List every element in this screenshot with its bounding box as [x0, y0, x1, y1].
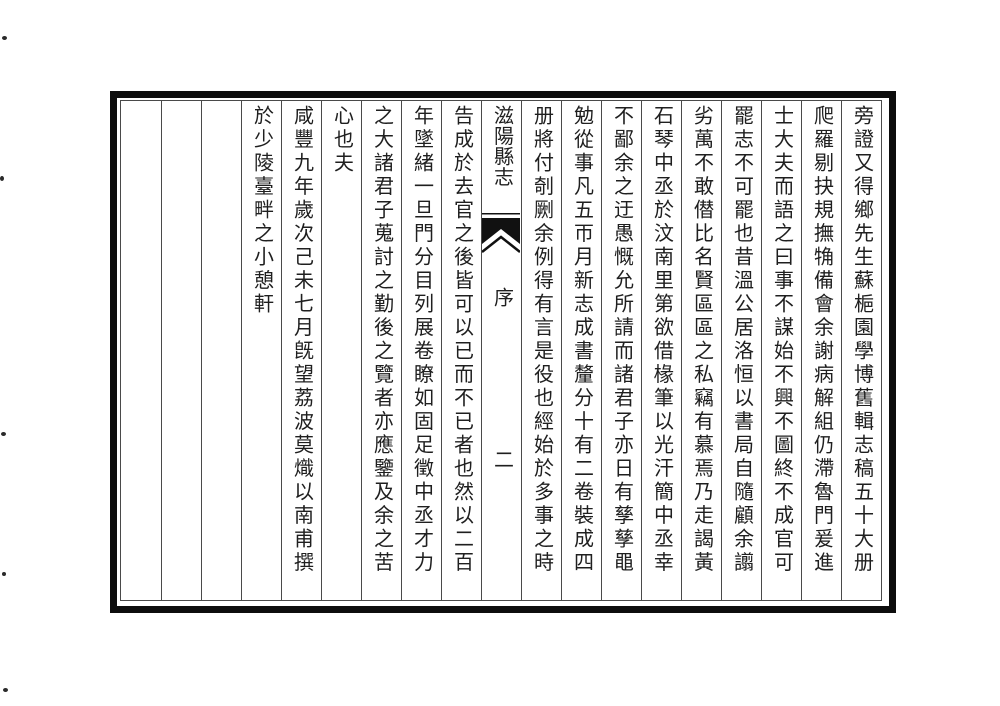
text-column: 心也夫: [321, 101, 361, 600]
text-column: 劣萬不敢僣比名賢區區之私竊有慕焉乃走謁黃: [681, 101, 721, 600]
book-title: 滋陽縣志: [482, 101, 521, 187]
empty-column: [121, 101, 161, 600]
page-text-frame: 旁證又得鄉先生蘇梔園學博舊輯志稿五十大册 爬羅剔抉規撫觕備會余謝病解組仍滯魯門爰…: [120, 100, 882, 601]
spine-column: 滋陽縣志 序 二: [481, 101, 521, 600]
column-text: 不鄙余之迂愚慨允所請而諸君子亦日有孳孳黽: [603, 101, 641, 600]
column-text: 爬羅剔抉規撫觕備會余謝病解組仍滯魯門爰進: [803, 101, 841, 600]
column-text: 士大夫而語之曰事不謀始不興不圖終不成官可: [763, 101, 801, 600]
empty-column: [201, 101, 241, 600]
column-text: 告成於去官之後皆可以已而不已者也然以二百: [443, 101, 481, 600]
page-number: 二: [482, 449, 521, 469]
text-column: 石琴中丞於汶南里第欲借椽筆以光汗簡中丞幸: [641, 101, 681, 600]
column-text: 罷志不可罷也昔溫公居洛恒以書局自隨顧余譾: [723, 101, 761, 600]
scan-speck: [2, 36, 7, 40]
scan-speck: [0, 176, 4, 181]
column-text: 石琴中丞於汶南里第欲借椽筆以光汗簡中丞幸: [643, 101, 681, 600]
text-column: 於少陵臺畔之小憩軒: [241, 101, 281, 600]
column-text: 勉從事凡五帀月新志成書釐分十有二卷裝成四: [563, 101, 601, 600]
fishtail-icon: [482, 213, 520, 259]
column-text: 劣萬不敢僣比名賢區區之私竊有慕焉乃走謁黃: [683, 101, 721, 600]
scan-speck: [1, 432, 6, 436]
text-column: 士大夫而語之曰事不謀始不興不圖終不成官可: [761, 101, 801, 600]
column-text: 於少陵臺畔之小憩軒: [243, 101, 281, 600]
column-text: 咸豐九年歲次己未七月旣望荔波莫熾以南甫撰: [283, 101, 321, 600]
text-column: 年墜緒一旦門分目列展卷瞭如固足徵中丞才力: [401, 101, 441, 600]
text-column: 咸豐九年歲次己未七月旣望荔波莫熾以南甫撰: [281, 101, 321, 600]
column-text: 年墜緒一旦門分目列展卷瞭如固足徵中丞才力: [403, 101, 441, 600]
column-text: 之大諸君子蒐討之勤後之覽者亦應鑒及余之苦: [363, 101, 401, 600]
text-column: 告成於去官之後皆可以已而不已者也然以二百: [441, 101, 481, 600]
scanned-page: 旁證又得鄉先生蘇梔園學博舊輯志稿五十大册 爬羅剔抉規撫觕備會余謝病解組仍滯魯門爰…: [0, 0, 1000, 706]
text-column: 勉從事凡五帀月新志成書釐分十有二卷裝成四: [561, 101, 601, 600]
text-column: 爬羅剔抉規撫觕備會余謝病解組仍滯魯門爰進: [801, 101, 841, 600]
text-column: 旁證又得鄉先生蘇梔園學博舊輯志稿五十大册: [841, 101, 881, 600]
empty-column: [161, 101, 201, 600]
section-label: 序: [482, 287, 521, 307]
scan-speck: [3, 688, 8, 692]
column-text: 册將付剞劂余例得有言是役也經始於多事之時: [523, 101, 561, 600]
text-column: 之大諸君子蒐討之勤後之覽者亦應鑒及余之苦: [361, 101, 401, 600]
text-column: 册將付剞劂余例得有言是役也經始於多事之時: [521, 101, 561, 600]
column-text: 旁證又得鄉先生蘇梔園學博舊輯志稿五十大册: [843, 101, 881, 600]
text-column: 不鄙余之迂愚慨允所請而諸君子亦日有孳孳黽: [601, 101, 641, 600]
text-column: 罷志不可罷也昔溫公居洛恒以書局自隨顧余譾: [721, 101, 761, 600]
scan-speck: [2, 572, 6, 576]
column-text: 心也夫: [323, 101, 361, 600]
